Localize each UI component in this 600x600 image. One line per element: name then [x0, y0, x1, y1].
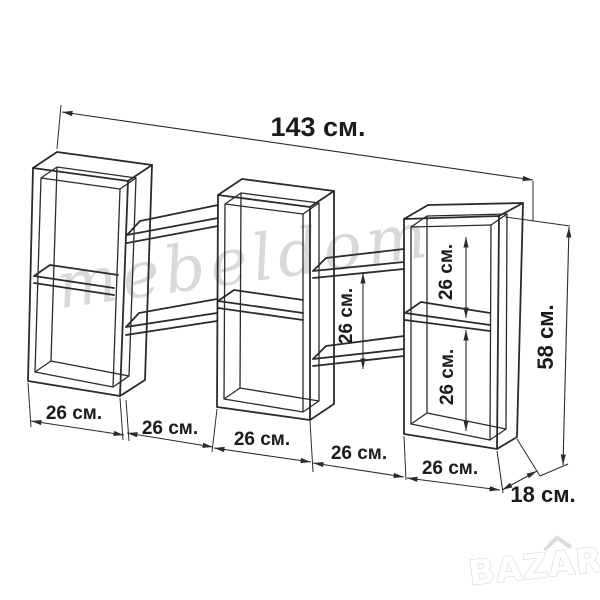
bazar-logo-text: BAZAR — [467, 540, 600, 594]
segment-5-label: 26 см. — [422, 458, 478, 479]
segment-1-label: 26 см. — [46, 403, 102, 424]
total-width-label: 143 см. — [270, 112, 365, 142]
segment-4-dimension-line — [313, 463, 404, 477]
right-box-middle-shelf — [405, 302, 490, 331]
bazar-logo: BAZAR — [466, 533, 600, 594]
total-height-label: 58 см. — [533, 304, 558, 369]
right-box-side-face — [497, 203, 523, 449]
segment-4-label: 26 см. — [331, 443, 387, 464]
segment-3-label: 26 см. — [234, 429, 290, 450]
segment-2-label: 26 см. — [142, 418, 198, 439]
right-box-lower-label: 26 см. — [437, 349, 458, 405]
shelf-dimension-diagram: mebeldom — [0, 0, 600, 600]
screenshot-canvas: mebeldom — [0, 0, 600, 600]
lower-shelf-middle-right — [313, 336, 404, 366]
segment-3-dimension-line — [214, 448, 311, 462]
right-box-upper-label: 26 см. — [436, 244, 457, 300]
height-dimension-line — [563, 227, 569, 465]
shelf-gap-label: 26 см. — [336, 288, 357, 344]
depth-label: 18 см. — [510, 482, 575, 507]
segment-5-dimension-line — [407, 478, 500, 490]
